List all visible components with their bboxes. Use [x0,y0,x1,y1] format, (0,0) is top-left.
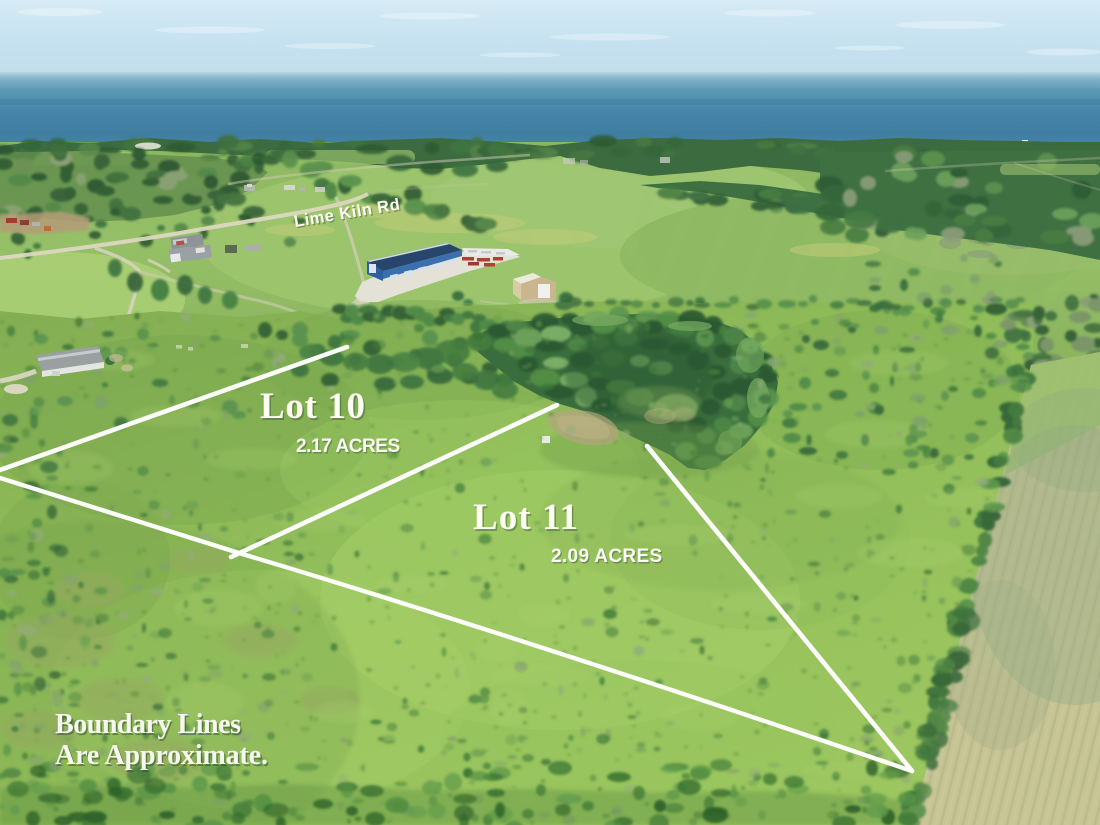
svg-text:Lot 11: Lot 11 [473,497,578,538]
svg-text:Are Approximate.: Are Approximate. [55,740,268,771]
svg-text:Boundary Lines: Boundary Lines [55,709,241,740]
svg-text:2.09 ACRES: 2.09 ACRES [551,546,663,567]
svg-text:2.17 ACRES: 2.17 ACRES [296,436,401,457]
svg-text:Lot 10: Lot 10 [260,386,365,427]
